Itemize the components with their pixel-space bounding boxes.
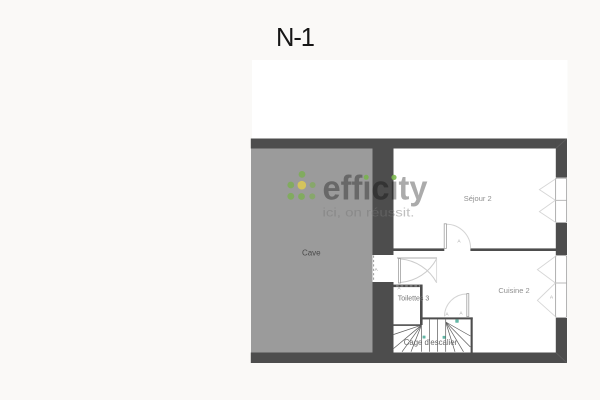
svg-text:Cuisine 2: Cuisine 2 — [498, 286, 529, 295]
svg-text:A: A — [398, 286, 401, 291]
svg-text:A: A — [446, 312, 449, 317]
svg-text:Toilettes 3: Toilettes 3 — [398, 295, 430, 302]
svg-text:A: A — [375, 267, 378, 272]
svg-text:Cage d'escalier: Cage d'escalier — [404, 338, 458, 347]
svg-text:A: A — [460, 311, 463, 316]
svg-text:ici, on réussit.: ici, on réussit. — [323, 207, 415, 219]
svg-text:Cave: Cave — [302, 248, 321, 257]
svg-text:effıcıty: effıcıty — [323, 170, 428, 208]
svg-text:A: A — [550, 295, 553, 300]
svg-text:Séjour 2: Séjour 2 — [464, 194, 492, 203]
svg-text:N-1: N-1 — [276, 24, 314, 52]
svg-text:A: A — [458, 239, 461, 244]
